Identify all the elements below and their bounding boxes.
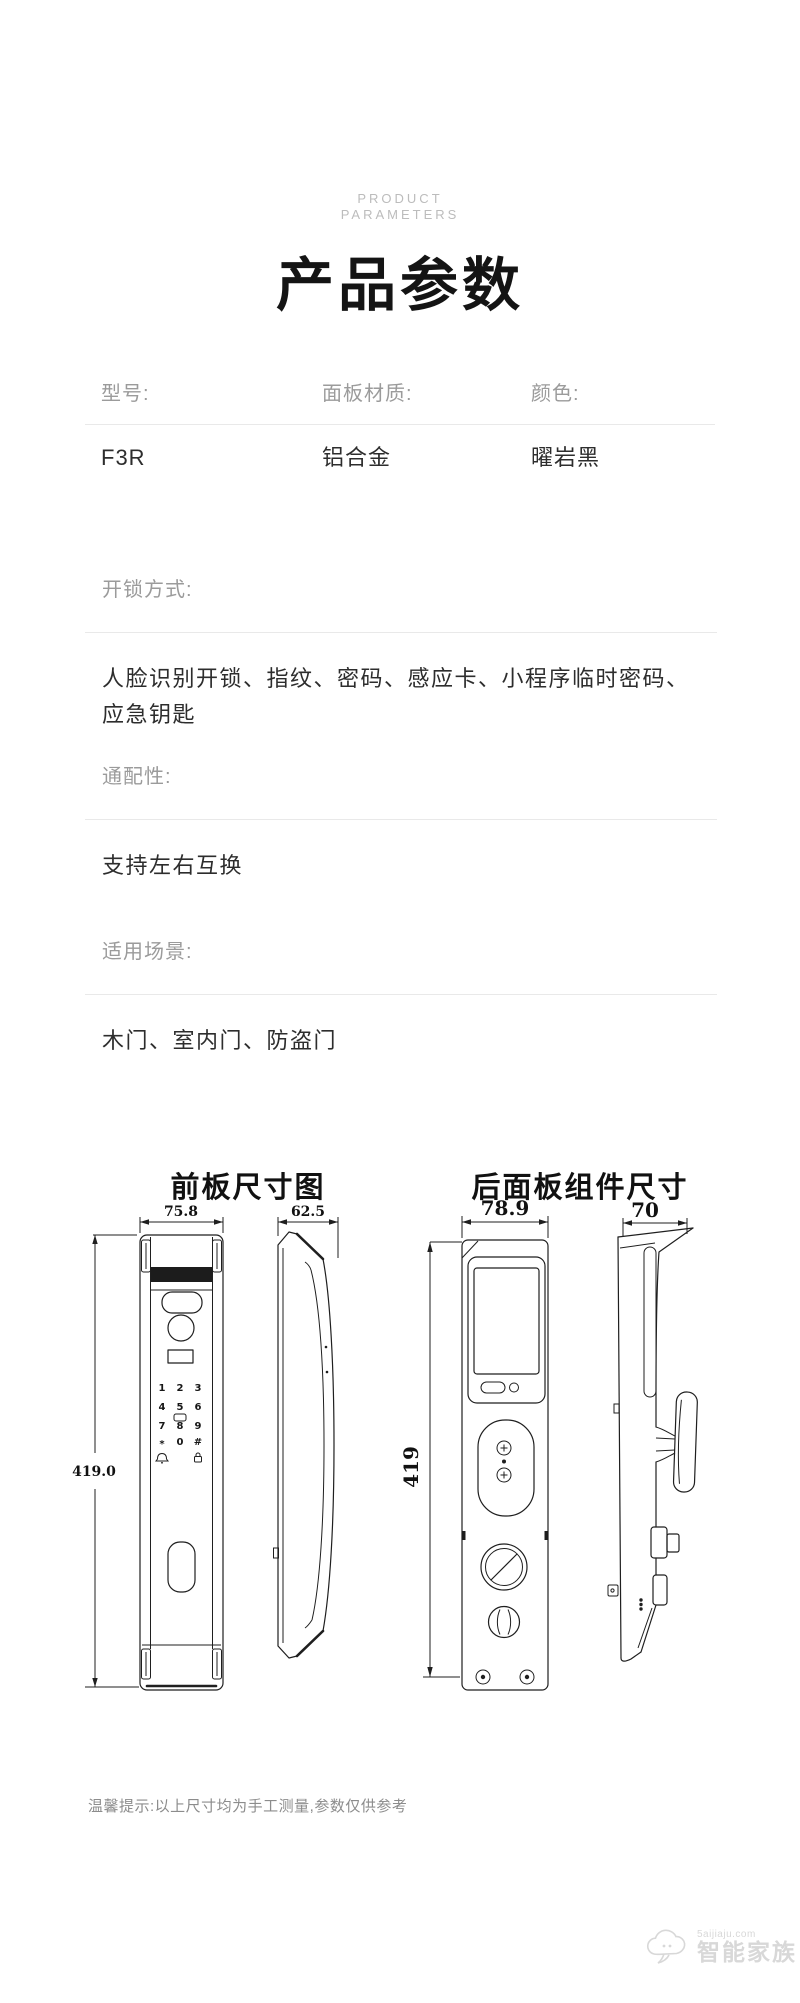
width-dimension: 78.9 <box>462 1196 548 1238</box>
key-3: 3 <box>195 1383 202 1394</box>
spec-value-model: F3R <box>101 445 322 471</box>
section-unlock-methods: 开锁方式: 人脸识别开锁、指纹、密码、感应卡、小程序临时密码、应急钥匙 <box>85 578 717 733</box>
lower-box <box>653 1575 667 1605</box>
section-compatibility: 通配性: 支持左右互换 <box>85 765 717 884</box>
section-compatibility-value: 支持左右互换 <box>85 848 702 884</box>
key-5: 5 <box>177 1402 184 1413</box>
bottom-screws <box>476 1670 534 1684</box>
section-divider <box>85 994 717 995</box>
eyebrow-caption: PRODUCT PARAMETERS <box>0 191 800 223</box>
side-width-label: 62.5 <box>291 1204 325 1220</box>
spec-label-material: 面板材质: <box>322 382 531 406</box>
key-hash: # <box>194 1437 202 1448</box>
section-applicable-scenes-value: 木门、室内门、防盗门 <box>85 1023 702 1059</box>
side-clip-upper <box>614 1404 619 1413</box>
side-profile <box>274 1232 335 1658</box>
spec-value-material: 铝合金 <box>322 445 531 471</box>
key-star: * <box>159 1439 165 1450</box>
battery-compartment <box>468 1257 545 1403</box>
rear-panel-side-view-drawing: 70 <box>585 1190 720 1765</box>
key-6: 6 <box>195 1402 202 1413</box>
eyebrow-line-2: PARAMETERS <box>0 207 800 223</box>
section-compatibility-label: 通配性: <box>85 765 717 789</box>
section-divider <box>85 632 717 633</box>
height-dimension: 419.0 <box>72 1235 139 1687</box>
turn-piece <box>489 1607 520 1638</box>
section-unlock-methods-label: 开锁方式: <box>85 578 717 602</box>
footer-tip: 温馨提示:以上尺寸均为手工测量,参数仅供参考 <box>88 1795 407 1816</box>
section-applicable-scenes-label: 适用场景: <box>85 940 717 964</box>
rear-width-label: 78.9 <box>481 1196 530 1220</box>
key-8: 8 <box>177 1421 184 1432</box>
watermark-name: 智能家族 <box>697 1940 797 1965</box>
width-dimension: 70 <box>623 1198 687 1237</box>
spec-table-value-row: F3R 铝合金 曜岩黑 <box>85 445 715 471</box>
front-panel-side-view-drawing: 62.5 <box>250 1190 370 1710</box>
rear-side-width-label: 70 <box>631 1198 659 1222</box>
front-panel-front-view-drawing: 75.8 419.0 1 2 3 4 5 6 7 8 9 * 0 # <box>40 1190 250 1705</box>
width-dimension: 75.8 <box>140 1204 223 1233</box>
battery-latch <box>481 1382 505 1393</box>
spec-value-color: 曜岩黑 <box>531 445 715 471</box>
spec-divider <box>85 424 715 425</box>
spindle-boss <box>651 1527 679 1558</box>
key-1: 1 <box>159 1383 166 1394</box>
doorbell-icon <box>156 1454 168 1464</box>
keypad: 1 2 3 4 5 6 7 8 9 * 0 # <box>156 1383 202 1464</box>
watermark: 5aijiaju.com 智能家族 <box>642 1927 797 1967</box>
height-dimension: 419 <box>399 1242 462 1677</box>
spec-table-header-row: 型号: 面板材质: 颜色: <box>85 382 715 406</box>
front-width-label: 75.8 <box>164 1204 198 1220</box>
section-unlock-methods-value: 人脸识别开锁、指纹、密码、感应卡、小程序临时密码、应急钥匙 <box>85 661 702 733</box>
panel-outline <box>140 1235 223 1690</box>
screw-plate <box>478 1420 534 1516</box>
key-9: 9 <box>195 1421 202 1432</box>
key-2: 2 <box>177 1383 184 1394</box>
spec-label-color: 颜色: <box>531 382 715 406</box>
face-camera-band <box>151 1267 212 1282</box>
mechanical-knob <box>481 1544 527 1590</box>
fingerprint-window <box>174 1414 186 1421</box>
handle <box>673 1392 697 1493</box>
side-clip-lower <box>608 1585 618 1596</box>
rear-panel-front-view-drawing: 78.9 419 <box>380 1190 570 1765</box>
spec-table: 型号: 面板材质: 颜色: F3R 铝合金 曜岩黑 <box>85 382 715 471</box>
front-height-label: 419.0 <box>72 1464 116 1480</box>
key-7: 7 <box>159 1421 166 1432</box>
key-0: 0 <box>177 1437 184 1448</box>
card-reader-area <box>168 1350 193 1363</box>
cloud-icon <box>642 1927 690 1967</box>
handle-stem <box>656 1427 675 1462</box>
lower-panel-details <box>142 1542 222 1686</box>
lock-icon <box>195 1453 202 1462</box>
section-applicable-scenes: 适用场景: 木门、室内门、防盗门 <box>85 940 717 1059</box>
eyebrow-line-1: PRODUCT <box>0 191 800 207</box>
key-4: 4 <box>159 1402 166 1413</box>
width-dimension: 62.5 <box>278 1204 338 1258</box>
section-divider <box>85 819 717 820</box>
screw-dots <box>639 1598 642 1610</box>
spec-label-model: 型号: <box>101 382 322 406</box>
rear-height-label: 419 <box>399 1446 423 1488</box>
panel-outline <box>462 1240 548 1690</box>
face-module-window <box>162 1292 202 1313</box>
keyhole-cover <box>168 1542 195 1592</box>
camera-lens <box>168 1315 194 1341</box>
page-title: 产品参数 <box>0 238 800 322</box>
